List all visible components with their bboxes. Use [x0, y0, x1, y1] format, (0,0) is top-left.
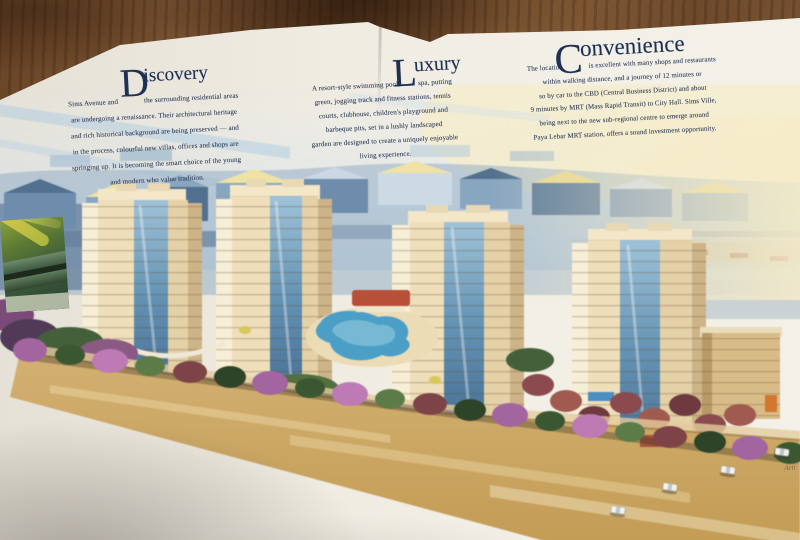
- brochure-sheet: D iscovery Sims Avenue andthe surroundin…: [0, 0, 800, 540]
- inset-photo-palm-rooftiles: [0, 217, 69, 313]
- section-title-text: uxury: [413, 52, 461, 77]
- section-title-text: iscovery: [143, 62, 208, 87]
- clubhouse-roof: [352, 290, 410, 306]
- section-discovery: D iscovery Sims Avenue andthe surroundin…: [59, 53, 251, 193]
- section-title-text: onvenience: [579, 31, 685, 62]
- brochure-photo: D iscovery Sims Avenue andthe surroundin…: [0, 0, 800, 540]
- artist-impression-caption: Arti: [784, 463, 796, 473]
- section-luxury: L uxury A resort-style swimming pool,spa…: [295, 44, 471, 167]
- section-convenience: C onvenience The locationis excellent wi…: [517, 25, 728, 146]
